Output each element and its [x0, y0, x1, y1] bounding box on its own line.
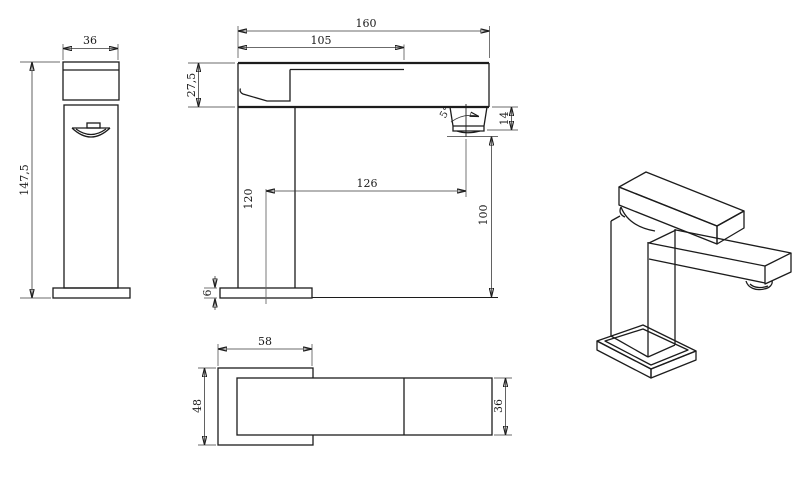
- iso-base-front-right-face: [651, 351, 696, 378]
- dim-handle-length-label: 105: [311, 34, 332, 47]
- dim-outlet-clearance-label: 100: [477, 205, 490, 226]
- iso-spout-end-face: [765, 253, 791, 284]
- side-view: 36 147,5: [18, 34, 130, 298]
- dim-base-thickness-label: 6: [201, 290, 214, 297]
- cartridge-detail: [87, 123, 100, 128]
- dim-spout-reach-label: 126: [357, 177, 378, 190]
- side-view-dimensions: 36 147,5: [18, 34, 118, 298]
- dim-handle-width-label: 36: [83, 34, 97, 47]
- isometric-view: [597, 172, 791, 378]
- front-view: 160 105 27,5 5° 14 126 120 100 6: [185, 17, 518, 310]
- dim-total-height-label: 147,5: [18, 164, 31, 196]
- front-view-dimensions: 160 105 27,5 5° 14 126 120 100 6: [185, 17, 518, 310]
- dim-body-height-label: 120: [242, 189, 255, 210]
- iso-handle-pivot-curve: [621, 207, 655, 231]
- iso-column-bottom-right-edge: [648, 345, 675, 357]
- dim-spout-height-label: 27,5: [185, 73, 198, 98]
- faucet-technical-drawing-page: 36 147,5 16: [0, 0, 800, 478]
- dim-outlet-depth-label: 14: [498, 112, 511, 126]
- dim-base-width-label: 48: [191, 399, 204, 413]
- iso-column-top-edge: [611, 216, 620, 221]
- dim-base-length-label: 58: [258, 335, 272, 348]
- body-outline: [64, 105, 118, 288]
- iso-handle-pivot-tip: [620, 207, 625, 217]
- iso-spout-top-face: [649, 230, 791, 266]
- technical-drawing: 36 147,5 16: [0, 0, 800, 478]
- side-view-outline: [53, 62, 130, 298]
- iso-handle-top-face: [619, 172, 744, 226]
- iso-base-front-left-face: [597, 341, 651, 378]
- dim-spout-width-label: 36: [492, 399, 505, 413]
- handle-lever-tip: [240, 70, 290, 102]
- spray-angle-arc: [451, 115, 479, 122]
- plan-view: 58 48 36: [191, 335, 512, 445]
- spout-bar-plan: [237, 378, 492, 435]
- plan-view-outline: [218, 368, 492, 445]
- dome-outer-curve: [72, 128, 110, 137]
- dim-overall-length-label: 160: [356, 17, 377, 30]
- base-plate-side: [53, 288, 130, 298]
- handle-cap-outline: [63, 62, 119, 100]
